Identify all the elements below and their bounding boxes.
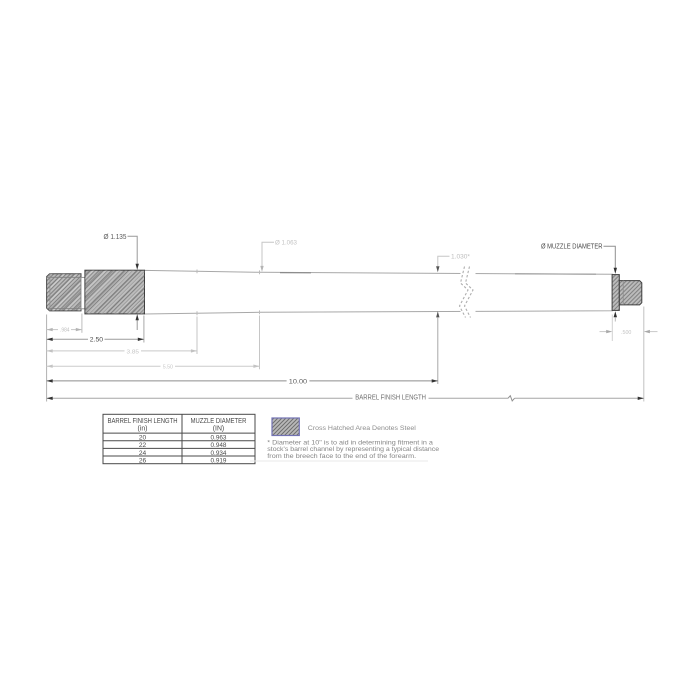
- svg-text:(in): (in): [138, 426, 148, 433]
- svg-text:2.50: 2.50: [90, 337, 104, 344]
- svg-text:0.948: 0.948: [211, 442, 227, 449]
- svg-text:24: 24: [139, 450, 147, 457]
- svg-text:22: 22: [139, 442, 147, 449]
- svg-text:26: 26: [139, 457, 147, 464]
- svg-text:Ø 1.135: Ø 1.135: [104, 232, 127, 241]
- svg-text:MUZZLE DIAMETER: MUZZLE DIAMETER: [191, 418, 247, 425]
- svg-text:5.50: 5.50: [163, 365, 173, 371]
- svg-text:.984: .984: [60, 328, 70, 334]
- svg-text:0.919: 0.919: [211, 457, 227, 464]
- svg-text:20: 20: [139, 435, 147, 442]
- svg-text:0.934: 0.934: [211, 450, 227, 457]
- svg-text:1.030*: 1.030*: [451, 254, 470, 261]
- svg-text:Ø MUZZLE DIAMETER: Ø MUZZLE DIAMETER: [541, 242, 603, 251]
- svg-text:BARREL FINISH LENGTH: BARREL FINISH LENGTH: [108, 418, 178, 425]
- svg-text:.500: .500: [621, 330, 631, 336]
- svg-text:from the breech face to the en: from the breech face to the end of the f…: [267, 453, 416, 460]
- svg-text:BARREL FINISH LENGTH: BARREL FINISH LENGTH: [355, 395, 426, 402]
- svg-text:(IN): (IN): [213, 426, 224, 433]
- svg-text:10.00: 10.00: [289, 378, 308, 385]
- svg-text:0.963: 0.963: [211, 435, 227, 442]
- svg-text:Ø 1.063: Ø 1.063: [275, 239, 297, 246]
- svg-text:3.85: 3.85: [127, 349, 140, 355]
- svg-text:Cross Hatched Area Denotes Ste: Cross Hatched Area Denotes Steel: [308, 425, 416, 432]
